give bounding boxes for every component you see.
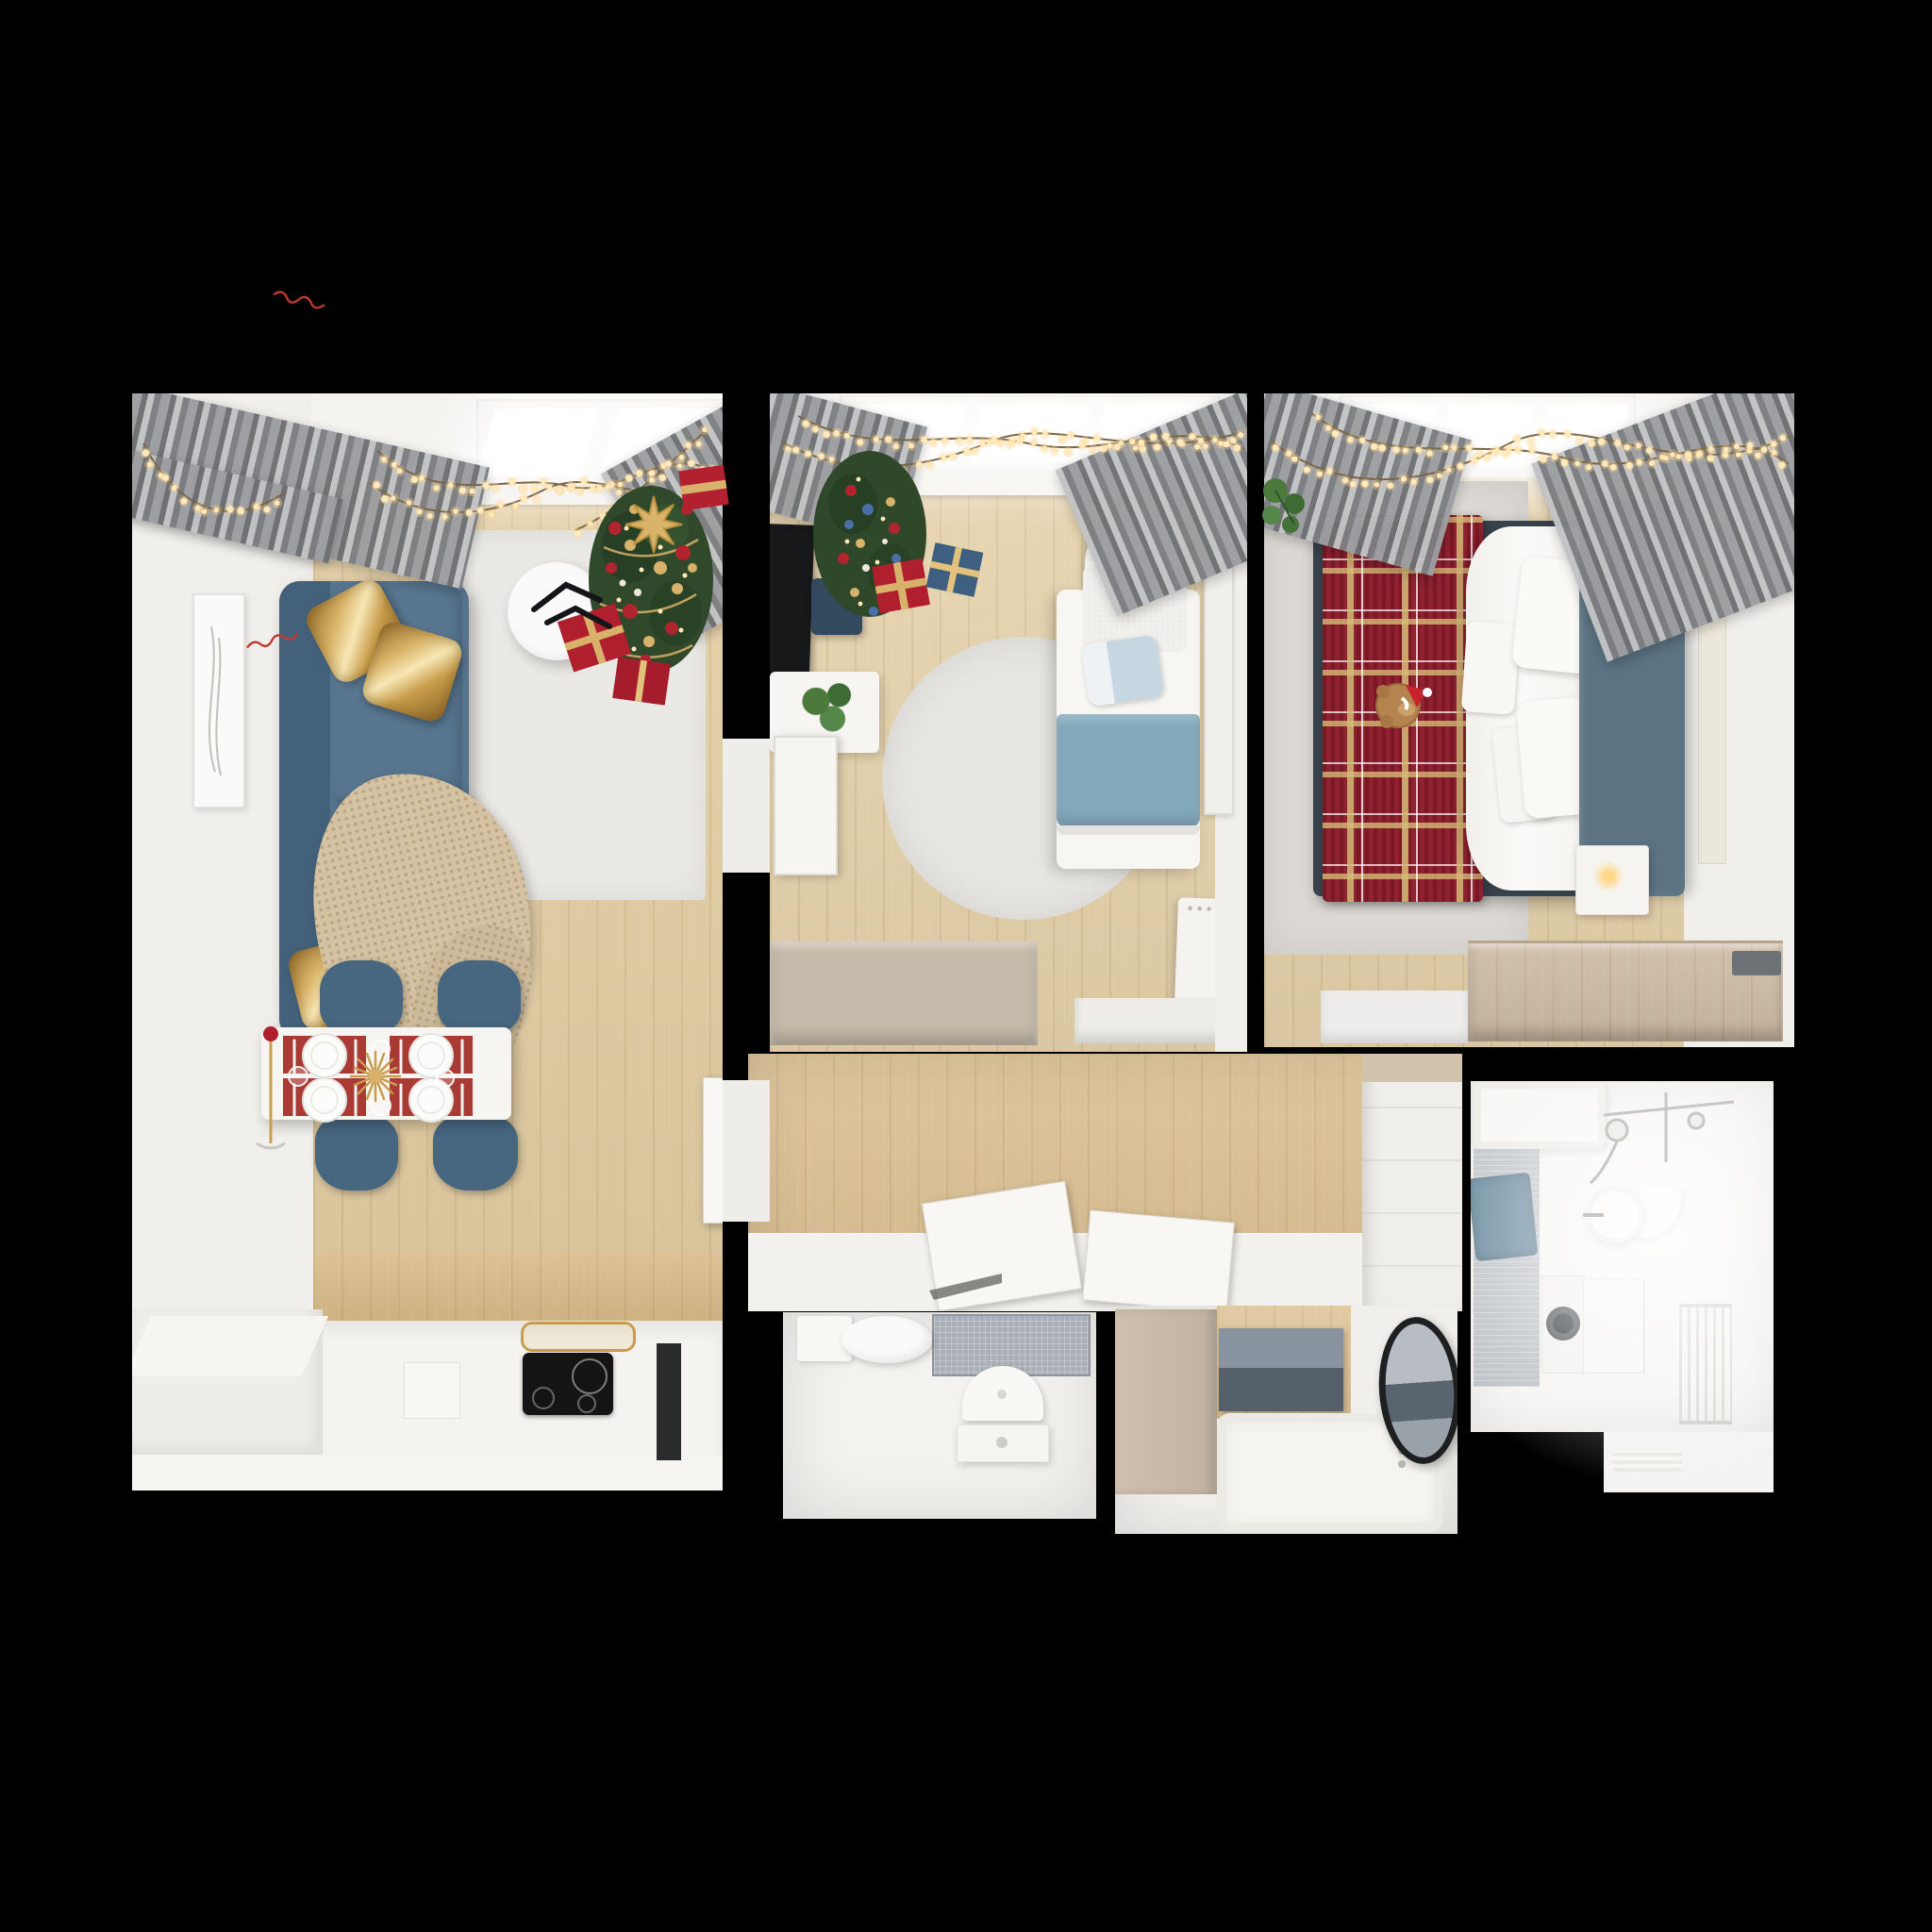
- kitchen-bottom-floor: [132, 1455, 723, 1491]
- room-living-kitchen: [132, 393, 723, 1491]
- door-gap-living-hall: [723, 1080, 770, 1222]
- storage-ottoman: [811, 578, 862, 635]
- dresser-beige: [770, 941, 1038, 1045]
- dining-chair: [315, 1115, 398, 1191]
- room-bedroom: [1264, 393, 1794, 1047]
- room-bathroom: [1115, 1306, 1457, 1534]
- kitchen-sink: [404, 1362, 460, 1419]
- door-white: [1204, 558, 1234, 815]
- cabinet-knob: [996, 1437, 1008, 1448]
- daybed-frame-edge: [1057, 825, 1200, 835]
- coat-rack: [1174, 897, 1220, 1006]
- placemat: [390, 1036, 473, 1074]
- apartment-render: Top-down 3D render — two-room apartment …: [0, 0, 1932, 1932]
- white-low-cabinet: [1321, 991, 1468, 1043]
- wall-shelf: [1074, 998, 1234, 1043]
- bed-pillow: [1461, 621, 1521, 715]
- dining-chair: [438, 960, 521, 1034]
- room-hallway: [748, 1054, 1462, 1311]
- plaid-blanket: [1323, 515, 1483, 902]
- burner: [577, 1394, 596, 1413]
- plant: [796, 676, 862, 739]
- burner: [572, 1358, 608, 1394]
- open-door-leaf: [703, 1077, 723, 1224]
- room-shower: [1471, 1081, 1774, 1492]
- burner: [532, 1387, 555, 1409]
- basin-drain: [997, 1390, 1007, 1399]
- coat-rack-hooks: [1186, 906, 1212, 912]
- room-wc: [783, 1312, 1096, 1519]
- hall-wardrobe: [1362, 1054, 1462, 1311]
- wall-art-frame: [192, 593, 245, 808]
- induction-cooktop: [523, 1353, 613, 1415]
- dining-chair: [320, 960, 403, 1034]
- placemat: [283, 1078, 366, 1116]
- tall-cabinet-beige: [1115, 1309, 1217, 1494]
- door-gap-living-kids: [723, 739, 770, 873]
- window-pane: [971, 405, 1091, 463]
- brightness-washout: [1471, 1081, 1774, 1492]
- candle-glow: [1592, 860, 1624, 892]
- daybed-foot-blanket: [1057, 714, 1200, 827]
- open-door-leaf: [1082, 1209, 1235, 1311]
- gold-tray: [521, 1322, 636, 1352]
- room-kids: [770, 393, 1247, 1052]
- placemat: [283, 1036, 366, 1074]
- coffee-table: [508, 562, 606, 660]
- dresser-object: [1732, 951, 1781, 975]
- window-pane: [476, 408, 600, 476]
- kitchen-backsplash-band: [313, 1253, 723, 1323]
- daybed-pillow: [1081, 635, 1164, 707]
- wardrobe-top-band: [1362, 1054, 1462, 1082]
- bath-mat: [1219, 1328, 1343, 1411]
- toilet-bowl: [841, 1316, 932, 1363]
- open-door-leaf: [774, 736, 838, 875]
- dining-chair: [433, 1115, 518, 1191]
- open-door-leaf: [922, 1181, 1082, 1311]
- kitchen-left-counter-top: [132, 1316, 328, 1376]
- oven-column: [657, 1343, 681, 1460]
- placemat: [390, 1078, 473, 1116]
